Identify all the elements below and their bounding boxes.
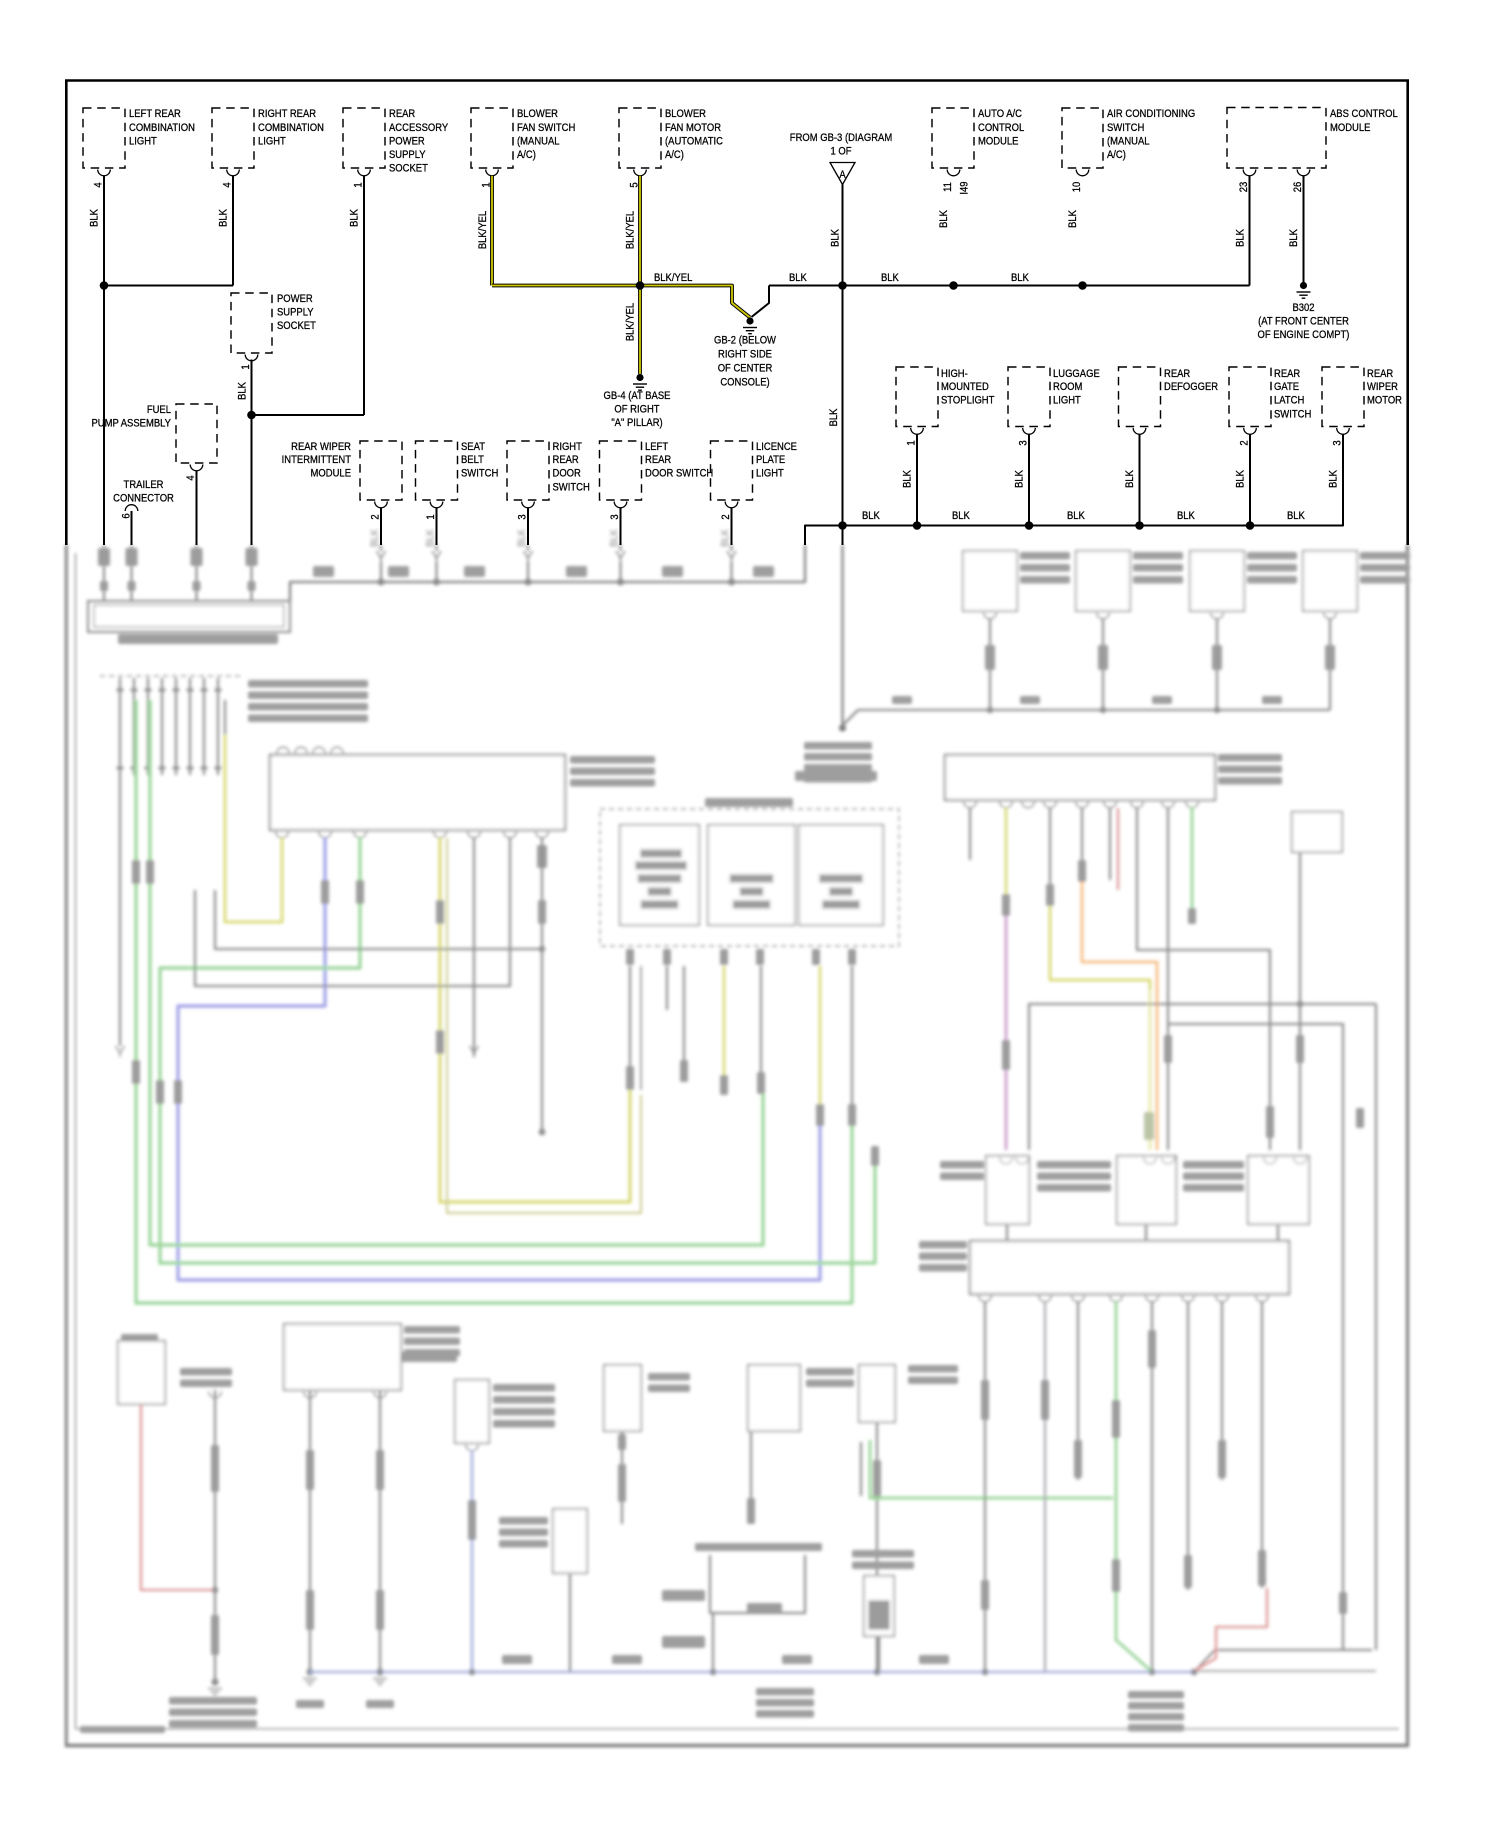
svg-text:DEFOGGER: DEFOGGER [1164, 382, 1218, 394]
svg-text:BLK: BLK [1125, 470, 1137, 488]
svg-text:SWITCH: SWITCH [1274, 409, 1311, 421]
svg-text:BLK/YEL: BLK/YEL [625, 211, 637, 250]
svg-text:6: 6 [121, 513, 133, 519]
svg-text:FAN MOTOR: FAN MOTOR [665, 122, 721, 134]
svg-text:REAR: REAR [1164, 368, 1190, 380]
svg-text:BLK: BLK [902, 470, 914, 488]
svg-text:REAR: REAR [1367, 368, 1393, 380]
svg-text:WIPER: WIPER [1367, 382, 1398, 394]
svg-text:LICENCE: LICENCE [756, 441, 797, 453]
svg-text:(AT FRONT CENTER: (AT FRONT CENTER [1258, 316, 1349, 328]
svg-text:"A" PILLAR): "A" PILLAR) [611, 418, 662, 430]
svg-text:FUEL: FUEL [147, 404, 171, 416]
svg-text:BLK: BLK [952, 510, 970, 522]
svg-text:REAR: REAR [645, 455, 671, 467]
svg-text:10: 10 [1072, 181, 1084, 192]
svg-text:4: 4 [186, 475, 198, 481]
svg-text:SWITCH: SWITCH [1107, 122, 1144, 134]
svg-text:ACCESSORY: ACCESSORY [389, 122, 448, 134]
svg-text:BLK: BLK [881, 272, 899, 284]
svg-text:BLK: BLK [1067, 510, 1085, 522]
svg-text:BLK: BLK [829, 408, 841, 426]
svg-text:LIGHT: LIGHT [129, 136, 158, 148]
svg-text:BLK: BLK [1287, 510, 1305, 522]
svg-text:BLK: BLK [830, 229, 842, 247]
svg-text:1: 1 [241, 364, 253, 370]
svg-text:POWER: POWER [389, 136, 425, 148]
svg-text:LUGGAGE: LUGGAGE [1053, 368, 1100, 380]
svg-text:1: 1 [426, 514, 438, 520]
svg-text:A/C): A/C) [1107, 149, 1126, 161]
svg-text:3: 3 [1018, 440, 1030, 446]
svg-text:RIGHT REAR: RIGHT REAR [258, 109, 316, 121]
svg-text:BLK: BLK [237, 382, 249, 400]
svg-text:BLK: BLK [720, 529, 732, 547]
svg-text:11: 11 [943, 182, 955, 192]
svg-text:BLK/YEL: BLK/YEL [654, 272, 693, 284]
svg-text:REAR: REAR [389, 109, 415, 121]
svg-text:BLK: BLK [1328, 470, 1340, 488]
svg-text:2: 2 [1239, 440, 1251, 446]
svg-text:BLK/YEL: BLK/YEL [478, 211, 490, 250]
svg-text:SOCKET: SOCKET [389, 163, 429, 175]
svg-text:MOTOR: MOTOR [1367, 395, 1402, 407]
svg-text:SOCKET: SOCKET [277, 321, 317, 333]
svg-text:BELT: BELT [461, 455, 485, 467]
svg-text:CONSOLE): CONSOLE) [720, 377, 769, 389]
svg-text:GATE: GATE [1274, 382, 1299, 394]
svg-text:BLK: BLK [939, 210, 951, 228]
svg-text:1 OF: 1 OF [830, 146, 851, 158]
svg-text:BLK: BLK [609, 529, 621, 547]
svg-text:A: A [839, 169, 845, 181]
svg-text:DOOR SWITCH: DOOR SWITCH [645, 468, 713, 480]
svg-text:2: 2 [370, 514, 382, 520]
svg-text:MODULE: MODULE [311, 468, 352, 480]
svg-text:(MANUAL: (MANUAL [517, 136, 560, 148]
svg-text:TRAILER: TRAILER [124, 479, 164, 491]
svg-text:HIGH-: HIGH- [941, 368, 968, 380]
svg-text:OF ENGINE COMPT): OF ENGINE COMPT) [1258, 329, 1350, 341]
svg-text:REAR: REAR [553, 455, 579, 467]
svg-text:BLK: BLK [1235, 470, 1247, 488]
svg-text:BLK: BLK [218, 209, 230, 227]
svg-text:B302: B302 [1292, 302, 1314, 314]
svg-text:LIGHT: LIGHT [756, 468, 785, 480]
svg-text:A/C): A/C) [665, 149, 684, 161]
svg-text:FROM GB-3 (DIAGRAM: FROM GB-3 (DIAGRAM [790, 132, 892, 144]
svg-text:BLOWER: BLOWER [665, 109, 706, 121]
svg-text:GB-2 (BELOW: GB-2 (BELOW [714, 335, 776, 347]
svg-text:AUTO A/C: AUTO A/C [978, 109, 1022, 121]
svg-text:LIGHT: LIGHT [258, 136, 287, 148]
svg-text:BLK: BLK [1289, 229, 1301, 247]
svg-text:2: 2 [721, 514, 733, 520]
svg-text:SUPPLY: SUPPLY [389, 149, 426, 161]
svg-text:CONTROL: CONTROL [978, 122, 1024, 134]
svg-text:MODULE: MODULE [1330, 122, 1371, 134]
svg-text:BLK: BLK [1235, 229, 1247, 247]
svg-text:REAR WIPER: REAR WIPER [291, 441, 351, 453]
svg-text:SWITCH: SWITCH [461, 468, 498, 480]
svg-text:RIGHT: RIGHT [553, 441, 583, 453]
svg-text:(MANUAL: (MANUAL [1107, 136, 1150, 148]
svg-text:BLK: BLK [89, 209, 101, 227]
svg-text:3: 3 [517, 514, 529, 520]
svg-text:(AUTOMATIC: (AUTOMATIC [665, 136, 723, 148]
svg-text:BLK: BLK [1177, 510, 1195, 522]
svg-text:GB-4 (AT BASE: GB-4 (AT BASE [604, 390, 671, 402]
svg-text:ROOM: ROOM [1053, 382, 1082, 394]
svg-text:SUPPLY: SUPPLY [277, 307, 314, 319]
svg-text:MODULE: MODULE [978, 136, 1019, 148]
svg-text:LIGHT: LIGHT [1053, 395, 1082, 407]
svg-text:OF CENTER: OF CENTER [718, 363, 773, 375]
svg-text:POWER: POWER [277, 293, 313, 305]
svg-text:BLK/YEL: BLK/YEL [625, 303, 637, 342]
svg-text:CONNECTOR: CONNECTOR [113, 493, 174, 505]
svg-text:DOOR: DOOR [553, 468, 581, 480]
svg-text:BLOWER: BLOWER [517, 109, 558, 121]
svg-text:PLATE: PLATE [756, 455, 785, 467]
svg-text:I49: I49 [959, 181, 971, 194]
svg-text:BLK: BLK [349, 209, 361, 227]
svg-text:BLK: BLK [425, 529, 437, 547]
svg-text:LATCH: LATCH [1274, 395, 1304, 407]
svg-text:LEFT: LEFT [645, 441, 669, 453]
svg-text:1: 1 [906, 440, 918, 446]
svg-text:SWITCH: SWITCH [553, 482, 590, 494]
svg-text:BLK: BLK [1014, 470, 1026, 488]
svg-text:RIGHT SIDE: RIGHT SIDE [718, 349, 772, 361]
svg-text:REAR: REAR [1274, 368, 1300, 380]
svg-text:MOUNTED: MOUNTED [941, 382, 989, 394]
svg-text:A/C): A/C) [517, 149, 536, 161]
svg-text:COMBINATION: COMBINATION [129, 122, 195, 134]
svg-text:BLK: BLK [862, 510, 880, 522]
svg-text:BLK: BLK [789, 272, 807, 284]
svg-text:FAN SWITCH: FAN SWITCH [517, 122, 575, 134]
svg-text:3: 3 [610, 514, 622, 520]
svg-text:BLK: BLK [1011, 272, 1029, 284]
svg-text:SEAT: SEAT [461, 441, 486, 453]
svg-text:INTERMITTENT: INTERMITTENT [282, 455, 352, 467]
svg-text:BLK: BLK [517, 529, 529, 547]
svg-text:OF RIGHT: OF RIGHT [614, 404, 660, 416]
svg-text:PUMP ASSEMBLY: PUMP ASSEMBLY [91, 418, 171, 430]
svg-text:BLK: BLK [1068, 210, 1080, 228]
svg-text:AIR CONDITIONING: AIR CONDITIONING [1107, 109, 1195, 121]
svg-text:LEFT REAR: LEFT REAR [129, 109, 181, 121]
svg-text:BLK: BLK [370, 529, 382, 547]
svg-text:COMBINATION: COMBINATION [258, 122, 324, 134]
svg-text:STOPLIGHT: STOPLIGHT [941, 395, 995, 407]
svg-text:ABS CONTROL: ABS CONTROL [1330, 109, 1398, 121]
